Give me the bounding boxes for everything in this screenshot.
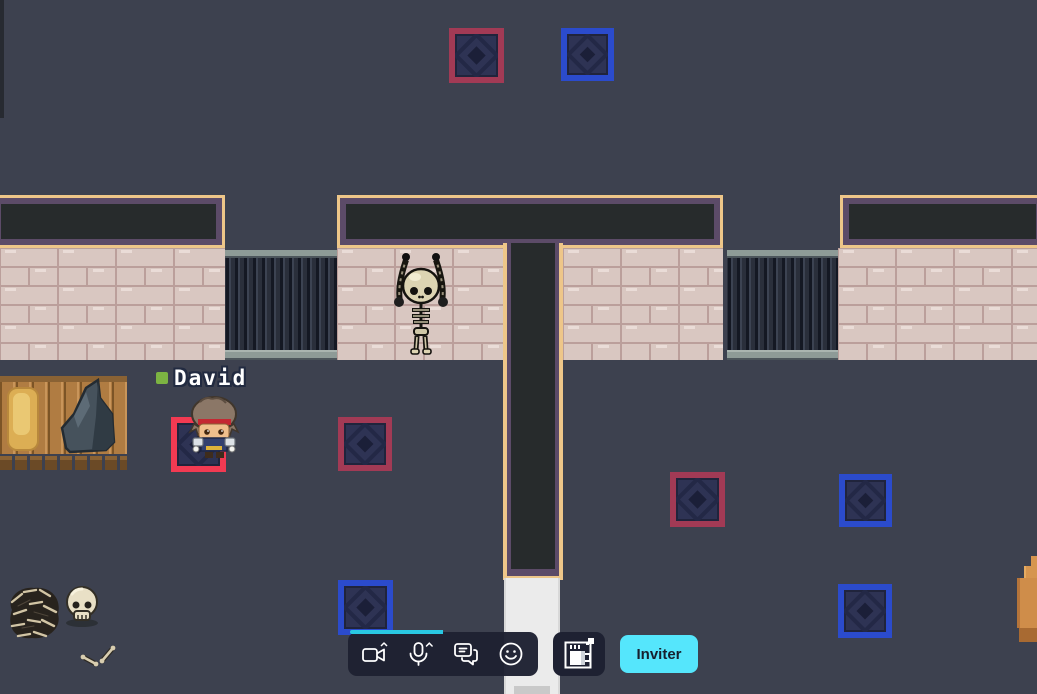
chat-icon[interactable]	[451, 639, 481, 669]
presence-indicator	[156, 372, 168, 384]
player-avatar[interactable]	[186, 396, 243, 460]
map-edge	[0, 0, 4, 118]
spawn-tile[interactable]	[670, 472, 725, 527]
spawn-tile[interactable]	[338, 417, 392, 471]
brick-wall	[563, 248, 723, 360]
skeleton-decoration	[388, 250, 454, 358]
wood-table	[0, 376, 127, 470]
coffee-icon	[561, 636, 597, 672]
fence-bars	[727, 250, 838, 360]
spawn-tile[interactable]	[449, 28, 504, 83]
spawn-tile[interactable]	[561, 28, 614, 81]
spawn-tile[interactable]	[338, 580, 393, 635]
brick-wall	[838, 248, 1037, 360]
spawn-tile[interactable]	[839, 474, 892, 527]
bone-pile	[4, 582, 64, 644]
wall-panel-right	[840, 195, 1037, 248]
player-name-tag: David	[156, 366, 247, 390]
toolbar-accent-bar	[350, 630, 443, 634]
coffee-break-button[interactable]	[553, 632, 605, 676]
control-toolbar	[348, 632, 538, 676]
camera-icon[interactable]	[360, 639, 390, 669]
skull	[62, 584, 104, 628]
spawn-tile[interactable]	[838, 584, 892, 638]
brick-wall	[0, 248, 225, 360]
wall-panel-center	[337, 195, 723, 248]
game-map[interactable]: David	[0, 0, 1037, 694]
invite-button[interactable]: Inviter	[620, 635, 698, 673]
wall-panel-left	[0, 195, 225, 248]
emoji-icon[interactable]	[496, 639, 526, 669]
corridor	[503, 243, 563, 580]
fence-bars	[225, 250, 337, 360]
player-name: David	[174, 366, 247, 390]
microphone-icon[interactable]	[405, 639, 435, 669]
scattered-bones	[78, 640, 118, 670]
